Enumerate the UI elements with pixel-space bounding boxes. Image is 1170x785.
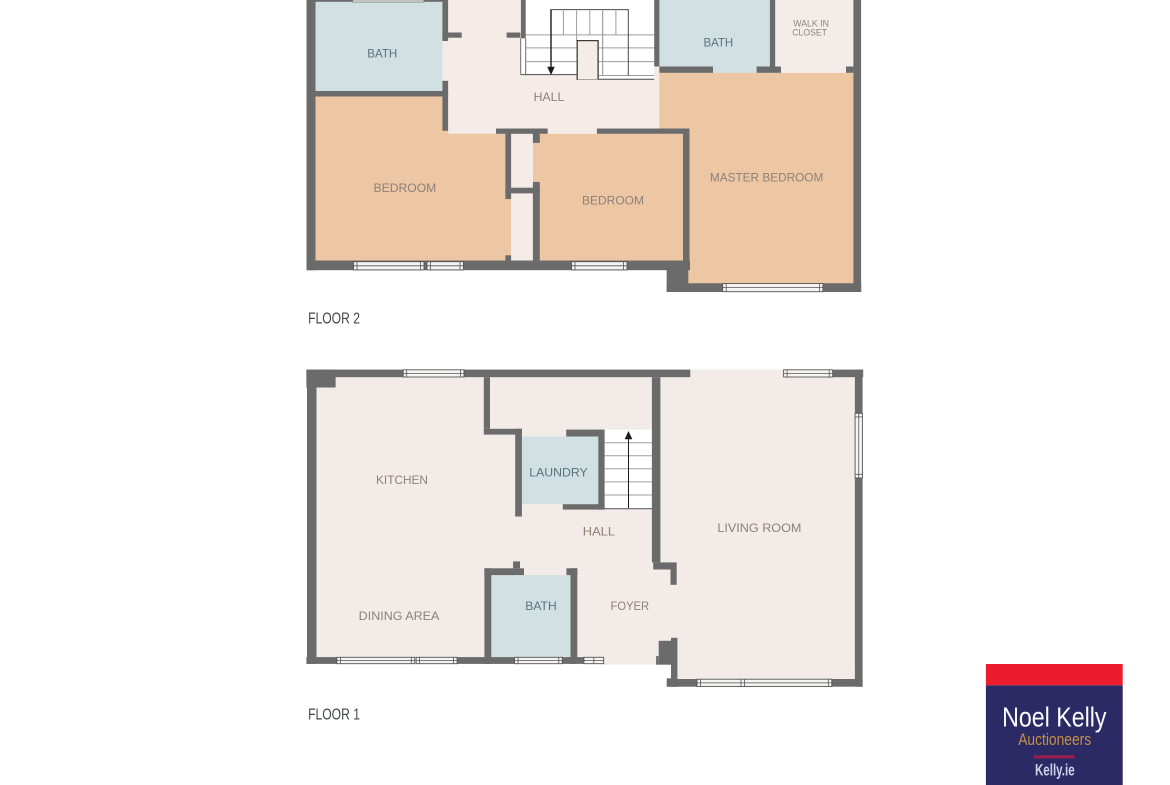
svg-text:BATH: BATH: [367, 46, 397, 60]
svg-text:MASTER BEDROOM: MASTER BEDROOM: [710, 171, 823, 185]
svg-text:FLOOR 1: FLOOR 1: [308, 706, 360, 723]
svg-text:BEDROOM: BEDROOM: [582, 194, 644, 208]
svg-text:HALL: HALL: [583, 525, 616, 539]
svg-text:FOYER: FOYER: [611, 599, 650, 613]
svg-text:Noel Kelly: Noel Kelly: [1002, 702, 1107, 733]
svg-text:BATH: BATH: [703, 35, 733, 49]
svg-text:LIVING ROOM: LIVING ROOM: [717, 521, 801, 535]
svg-text:LAUNDRY: LAUNDRY: [529, 466, 588, 480]
svg-text:Auctioneers: Auctioneers: [1018, 730, 1091, 749]
svg-text:BEDROOM: BEDROOM: [374, 181, 437, 195]
svg-text:FLOOR 2: FLOOR 2: [308, 311, 360, 328]
svg-text:CLOSET: CLOSET: [792, 28, 827, 38]
svg-text:BATH: BATH: [525, 599, 556, 613]
svg-text:DINING AREA: DINING AREA: [359, 609, 440, 623]
svg-text:KITCHEN: KITCHEN: [376, 473, 428, 487]
svg-text:HALL: HALL: [534, 90, 565, 104]
svg-text:Kelly.ie: Kelly.ie: [1035, 762, 1075, 780]
